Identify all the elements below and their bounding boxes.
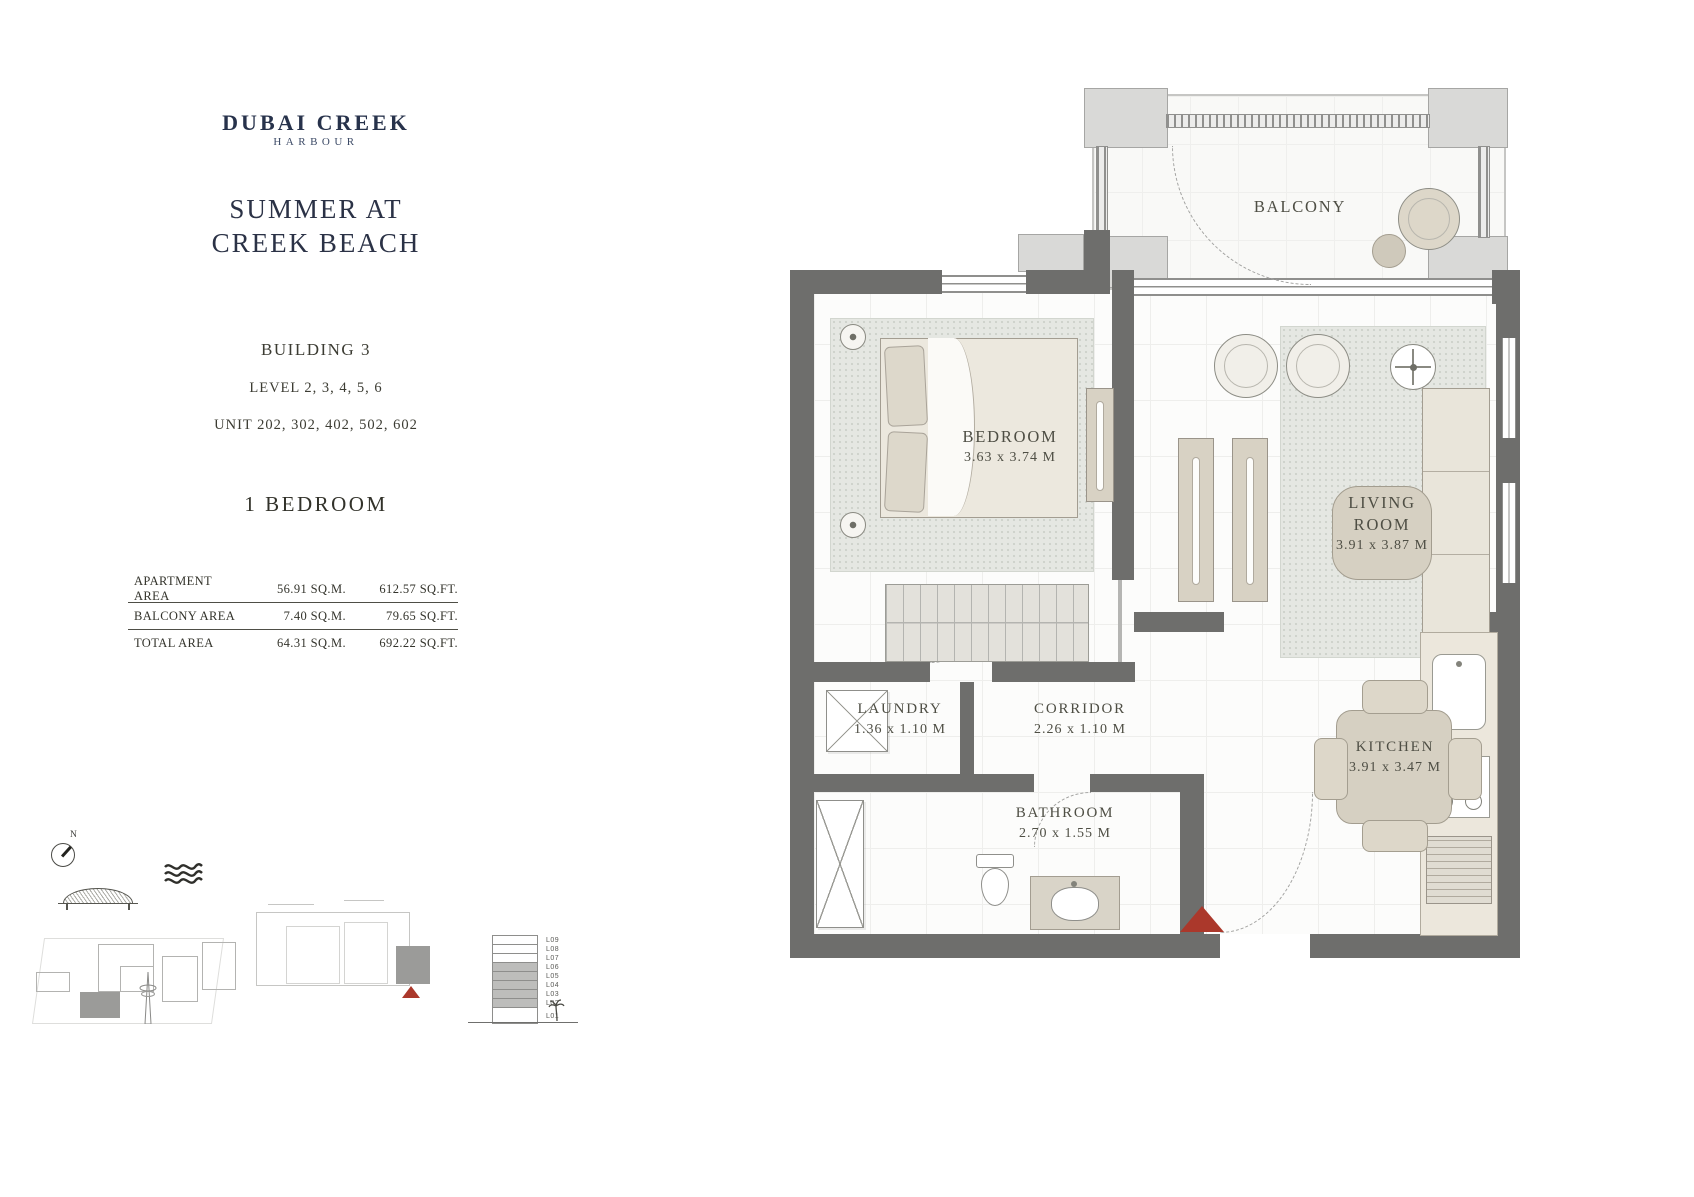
table-row-balcony: BALCONY AREA 7.40 SQ.M. 79.65 SQ.FT. (128, 602, 458, 629)
brand-logo: DUBAI CREEK HARBOUR (130, 110, 502, 148)
bridge-pier (66, 904, 68, 910)
room-name: BATHROOM (960, 802, 1170, 824)
wall (992, 662, 1135, 682)
balcony-chair (1398, 188, 1460, 250)
dining-chair (1362, 820, 1428, 852)
crosshair-dot (1410, 364, 1417, 371)
toilet-tank (976, 854, 1014, 868)
building-outline (202, 942, 236, 990)
bridge-arch (63, 888, 133, 904)
wall (790, 662, 930, 682)
living-room-label: LIVING ROOM 3.91 x 3.87 M (1320, 492, 1444, 556)
cabinet-handle (1246, 457, 1254, 585)
level-label: L09 (546, 937, 559, 944)
waves-icon (162, 860, 204, 888)
wall (790, 270, 942, 294)
bathroom-vanity (1030, 876, 1120, 930)
room-name: ROOM (1320, 514, 1444, 536)
wall (1084, 230, 1110, 294)
bridge-icon (58, 886, 138, 910)
tv-cabinet (1178, 438, 1214, 602)
ground-line (468, 1022, 578, 1023)
wardrobe (885, 584, 1089, 662)
table-row-apartment: APARTMENT AREA 56.91 SQ.M. 612.57 SQ.FT. (128, 576, 458, 602)
building-outline (162, 956, 198, 1002)
room-dims: 3.91 x 3.87 M (1320, 536, 1444, 556)
laundry-label: LAUNDRY 1.36 x 1.10 M (810, 698, 990, 740)
wall (1090, 774, 1204, 792)
room-name: CORRIDOR (990, 698, 1170, 720)
entrance-marker-icon (1180, 906, 1224, 932)
units-label: UNIT 202, 302, 402, 502, 602 (130, 417, 502, 434)
creek-tower-icon (138, 972, 158, 1024)
brand-name: DUBAI CREEK (130, 110, 502, 136)
row-label: APARTMENT AREA (128, 574, 246, 604)
balcony-pillar (1428, 88, 1508, 148)
faucet-icon (1071, 881, 1077, 887)
palm-tree-icon (548, 996, 566, 1022)
tv-cabinet (1232, 438, 1268, 602)
row-sqft: 79.65 SQ.FT. (346, 609, 458, 624)
level-stack-diagram: L09 L08 L07 L06 L05 L04 L03 L02 L01 (492, 936, 602, 1024)
side-window (1502, 338, 1516, 438)
balcony-table (1372, 234, 1406, 268)
armchair-seat (1296, 344, 1340, 388)
page-title: SUMMER AT CREEK BEACH (130, 192, 502, 260)
dining-chair (1362, 680, 1428, 714)
balcony-railing (1166, 114, 1430, 128)
balcony-pillar (1084, 88, 1168, 148)
room-name: BEDROOM (910, 426, 1110, 448)
row-label: BALCONY AREA (128, 609, 246, 624)
kitchen-label: KITCHEN 3.91 x 3.47 M (1333, 736, 1457, 778)
room-name: BALCONY (1220, 196, 1380, 218)
ceiling-fixture-icon (1390, 344, 1436, 390)
wash-basin (1051, 887, 1099, 921)
room-dims: 2.26 x 1.10 M (990, 720, 1170, 740)
wall (1310, 934, 1520, 958)
armchair (1214, 334, 1278, 398)
balcony-chair-seat (1408, 198, 1450, 240)
bedside-lamp-icon (840, 324, 866, 350)
wall (814, 774, 1034, 792)
floor-plate-detail (286, 926, 340, 984)
balcony-label: BALCONY (1220, 196, 1380, 218)
pillow (884, 345, 928, 427)
compass-needle (61, 846, 72, 857)
row-sqm: 56.91 SQ.M. (246, 582, 346, 597)
level-label: L07 (546, 955, 559, 962)
levels-label: LEVEL 2, 3, 4, 5, 6 (130, 380, 502, 397)
room-dims: 3.91 x 3.47 M (1333, 758, 1457, 778)
table-row-total: TOTAL AREA 64.31 SQ.M. 692.22 SQ.FT. (128, 629, 458, 656)
balcony-railing (1096, 146, 1108, 238)
bedroom-type-label: 1 BEDROOM (130, 492, 502, 517)
floor-plan: BALCONY BEDROOM 3.63 x 3.74 M LIVING ROO… (780, 88, 1550, 1038)
highlighted-unit (396, 946, 430, 984)
room-name: LIVING (1320, 492, 1444, 514)
row-sqm: 64.31 SQ.M. (246, 636, 346, 651)
bedroom-label: BEDROOM 3.63 x 3.74 M (910, 426, 1110, 468)
dimension-line (344, 900, 384, 901)
wall (790, 270, 814, 958)
area-table: APARTMENT AREA 56.91 SQ.M. 612.57 SQ.FT.… (128, 576, 458, 656)
building-outline (36, 972, 70, 992)
room-name: LAUNDRY (810, 698, 990, 720)
bridge-deck (58, 903, 138, 904)
level-label: L08 (546, 946, 559, 953)
level-label: L05 (546, 973, 559, 980)
compass-north-label: N (70, 830, 77, 840)
room-dims: 3.63 x 3.74 M (910, 448, 1110, 468)
side-window (1502, 483, 1516, 583)
cabinet-handle (1192, 457, 1200, 585)
utility-box (1018, 234, 1084, 272)
floor-plate-detail (344, 922, 388, 984)
refrigerator (1426, 836, 1492, 904)
row-sqft: 692.22 SQ.FT. (346, 636, 458, 651)
room-dims: 1.36 x 1.10 M (810, 720, 990, 740)
bedroom-window (942, 275, 1026, 293)
wall (1112, 270, 1134, 580)
compass-icon (51, 843, 75, 867)
corridor-label: CORRIDOR 2.26 x 1.10 M (990, 698, 1170, 740)
building-label: BUILDING 3 (130, 340, 502, 360)
row-sqm: 7.40 SQ.M. (246, 609, 346, 624)
bedside-lamp-icon (840, 512, 866, 538)
row-label: TOTAL AREA (128, 636, 246, 651)
title-line1: SUMMER AT (130, 192, 502, 226)
floorplan-brochure-page: DUBAI CREEK HARBOUR SUMMER AT CREEK BEAC… (0, 0, 1694, 1197)
row-sqft: 612.57 SQ.FT. (346, 582, 458, 597)
site-plan-icon (36, 930, 236, 1030)
wall (1026, 270, 1088, 294)
bathroom-label: BATHROOM 2.70 x 1.55 M (960, 802, 1170, 844)
dimension-line (268, 904, 314, 905)
room-name: KITCHEN (1333, 736, 1457, 758)
wall (790, 934, 1220, 958)
wall (1134, 612, 1224, 632)
unit-marker-icon (402, 986, 420, 998)
title-line2: CREEK BEACH (130, 226, 502, 260)
service-shaft (816, 800, 864, 928)
level-label: L04 (546, 982, 559, 989)
balcony-railing (1478, 146, 1490, 238)
key-plan-icon (248, 898, 430, 1002)
highlighted-building (80, 992, 120, 1018)
room-dims: 2.70 x 1.55 M (960, 824, 1170, 844)
armchair (1286, 334, 1350, 398)
bridge-pier (128, 904, 130, 910)
level-label: L06 (546, 964, 559, 971)
sliding-door (1118, 580, 1122, 664)
brand-tagline: HARBOUR (130, 136, 502, 148)
faucet-icon (1456, 661, 1462, 667)
armchair-seat (1224, 344, 1268, 388)
